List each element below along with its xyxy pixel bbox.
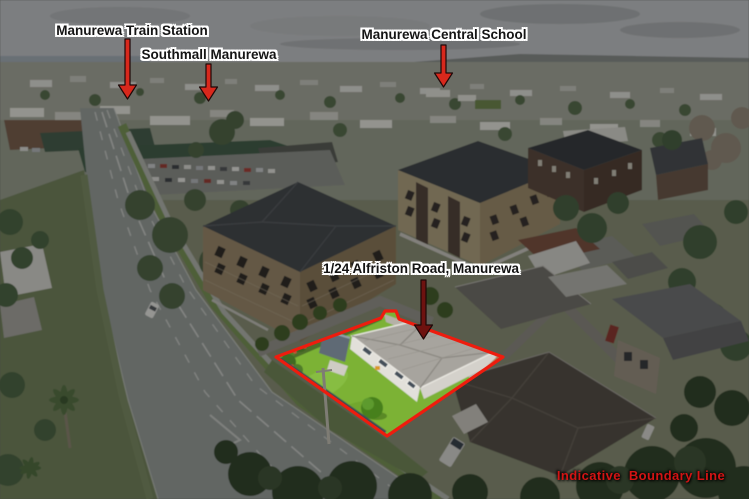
scene-svg: [0, 0, 749, 499]
label-property-address: 1/24 Alfriston Road, Manurewa: [323, 261, 519, 277]
garden-toy: [375, 366, 380, 370]
boundary-disclaimer: Indicative Boundary Line: [557, 468, 725, 483]
label-southmall: Southmall Manurewa: [141, 47, 276, 63]
label-train-station: Manurewa Train Station: [56, 23, 208, 39]
label-central-school: Manurewa Central School: [361, 27, 526, 43]
aerial-photo: Manurewa Train Station Southmall Manurew…: [0, 0, 749, 499]
